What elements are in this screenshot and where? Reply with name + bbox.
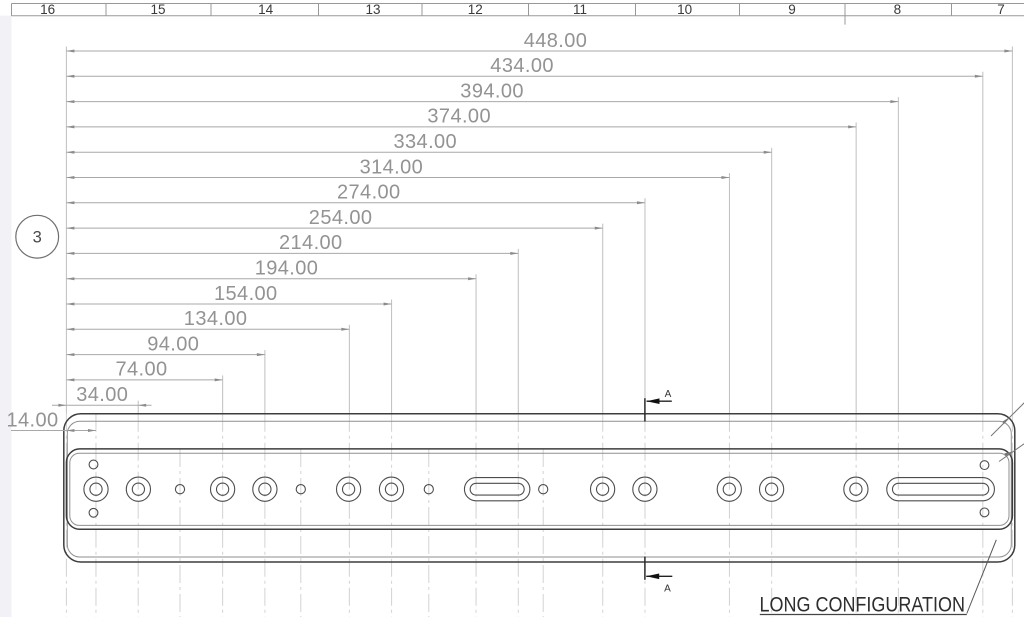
- svg-text:10: 10: [677, 2, 692, 17]
- svg-text:7: 7: [997, 2, 1005, 17]
- svg-text:74.00: 74.00: [115, 359, 167, 381]
- svg-text:434.00: 434.00: [490, 55, 554, 77]
- svg-text:154.00: 154.00: [214, 283, 278, 305]
- svg-text:34.00: 34.00: [76, 384, 128, 406]
- svg-text:14: 14: [258, 2, 274, 17]
- svg-text:A: A: [664, 584, 671, 595]
- svg-text:9: 9: [788, 2, 796, 17]
- svg-text:3: 3: [33, 229, 42, 247]
- svg-text:12: 12: [468, 2, 483, 17]
- svg-text:LONG CONFIGURATION: LONG CONFIGURATION: [760, 594, 966, 617]
- svg-text:334.00: 334.00: [394, 131, 458, 153]
- svg-text:448.00: 448.00: [524, 30, 588, 52]
- svg-text:13: 13: [365, 2, 380, 17]
- svg-text:134.00: 134.00: [184, 308, 248, 330]
- svg-text:394.00: 394.00: [460, 80, 524, 102]
- svg-text:254.00: 254.00: [309, 207, 373, 229]
- svg-text:15: 15: [150, 2, 165, 17]
- svg-text:8: 8: [894, 2, 902, 17]
- svg-text:14.00: 14.00: [6, 409, 58, 431]
- svg-text:214.00: 214.00: [279, 232, 343, 254]
- svg-text:11: 11: [573, 2, 587, 17]
- svg-text:194.00: 194.00: [255, 258, 319, 280]
- svg-text:16: 16: [40, 2, 55, 17]
- svg-text:374.00: 374.00: [427, 106, 491, 128]
- svg-text:A: A: [665, 389, 672, 400]
- svg-text:274.00: 274.00: [337, 182, 401, 204]
- svg-text:314.00: 314.00: [360, 156, 424, 178]
- svg-text:94.00: 94.00: [147, 333, 199, 355]
